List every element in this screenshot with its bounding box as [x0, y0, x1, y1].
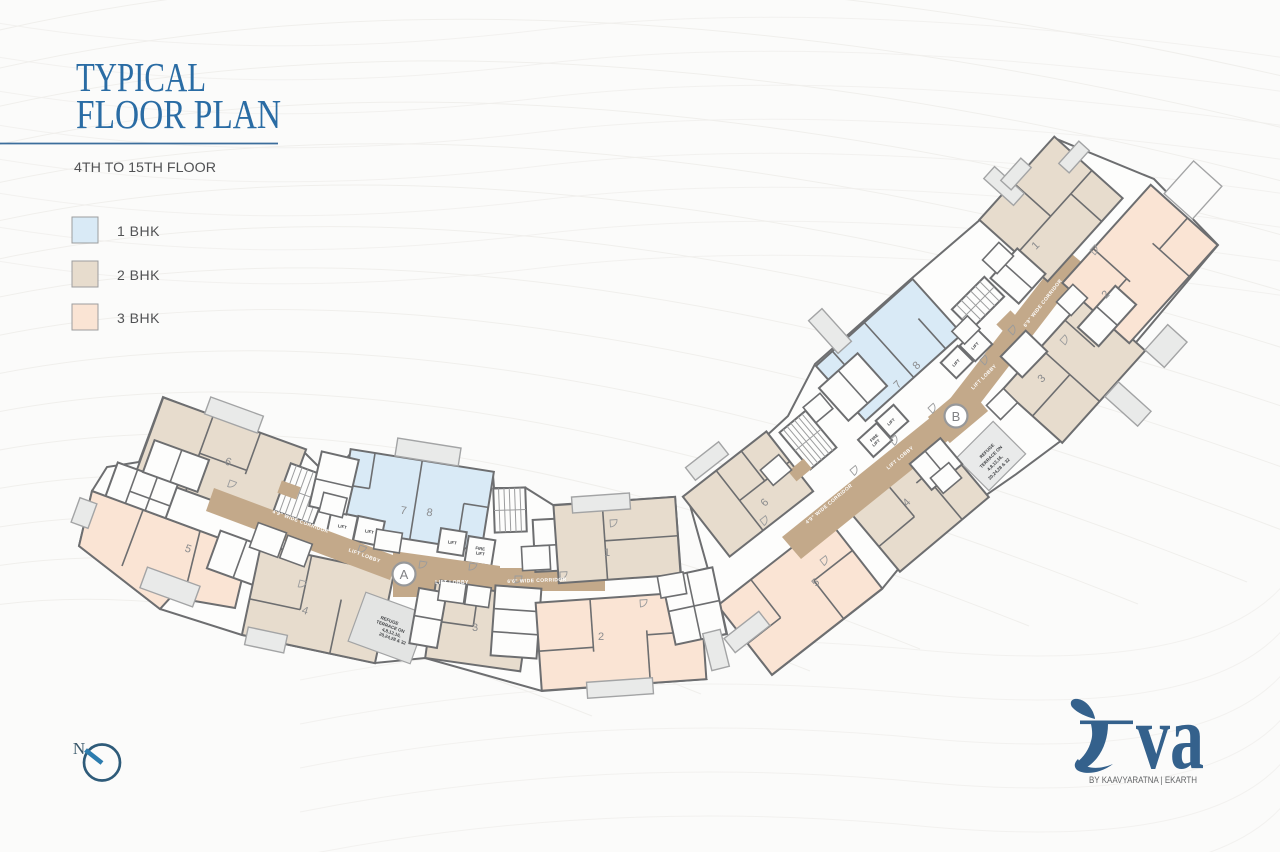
svg-text:1: 1	[604, 547, 610, 559]
svg-text:3 BHK: 3 BHK	[117, 310, 160, 326]
svg-text:va: va	[1136, 686, 1204, 788]
svg-text:1 BHK: 1 BHK	[117, 223, 160, 239]
svg-text:BY KAAVYARATNA | EKARTH: BY KAAVYARATNA | EKARTH	[1089, 775, 1197, 786]
svg-text:FLOOR PLAN: FLOOR PLAN	[76, 91, 281, 137]
svg-text:B: B	[952, 409, 961, 424]
svg-text:2: 2	[598, 631, 604, 643]
svg-text:LIFT LOBBY: LIFT LOBBY	[435, 580, 469, 586]
svg-text:2 BHK: 2 BHK	[117, 267, 160, 283]
svg-text:A: A	[400, 567, 409, 582]
svg-text:3: 3	[472, 622, 478, 634]
svg-text:4TH TO 15TH FLOOR: 4TH TO 15TH FLOOR	[74, 159, 216, 175]
svg-text:N: N	[73, 739, 85, 758]
